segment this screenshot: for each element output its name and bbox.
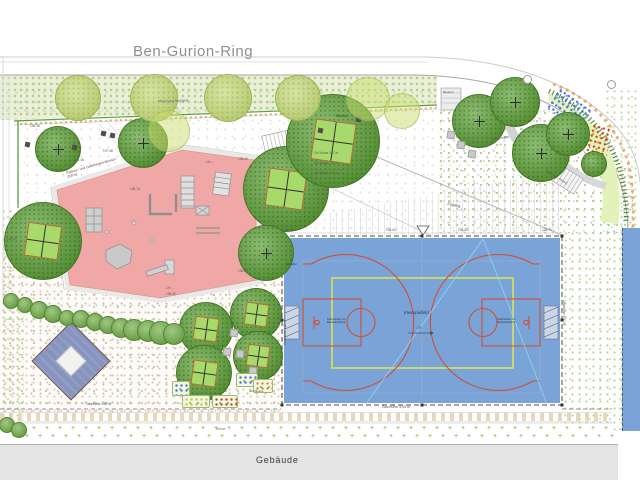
meadow-mark: + [363,433,367,440]
court-label: Kleinspielfeld [404,311,429,315]
meadow-mark: + [305,425,309,432]
bench-icon [110,133,116,139]
site-plan: Ben-Gurion-Ring Gebäude Pflanzung Bestan… [0,0,640,480]
tree-center-mark [138,138,149,149]
meadow-mark: + [584,433,588,440]
meadow-mark: + [227,425,231,432]
level-annotation: 136.30 [166,292,176,296]
meadow-mark: + [370,425,374,432]
meadow-mark: + [175,425,179,432]
meadow-mark: + [45,425,49,432]
meadow-mark: + [591,425,595,432]
meadow-mark: + [337,433,341,440]
meadow-mark: + [64,433,68,440]
meadow-mark: + [604,425,608,432]
existing-tree-icon [204,74,252,122]
meadow-mark: + [188,425,192,432]
meadow-mark: + [376,433,380,440]
bench-icon [101,131,107,137]
meadow-mark: + [435,425,439,432]
lamp-post-icon [607,80,616,89]
street-name: Ben-Gurion-Ring [133,44,253,60]
meadow-mark: + [38,433,42,440]
meadow-mark: + [461,425,465,432]
shrub-icon [11,422,27,438]
meadow-mark: + [77,433,81,440]
meadow-mark: + [545,433,549,440]
meadow-mark: + [246,433,250,440]
paving-stone-icon [456,140,465,149]
flower-bed [182,395,210,408]
court-markings [281,226,564,407]
meadow-mark: + [240,425,244,432]
meadow-mark: + [318,425,322,432]
level-annotation: 136.74 [130,187,140,191]
meadow-mark: + [519,433,523,440]
level-annotation: 136.63 [386,228,396,232]
meadow-mark: + [532,433,536,440]
existing-label: Bestand [443,91,453,94]
level-annotation: 1% → [166,286,175,290]
new-tree-symbol [243,301,269,327]
meadow-mark: + [168,433,172,440]
meadow-mark: + [201,425,205,432]
meadow-mark: + [103,433,107,440]
goal-label-right: Kleinfeldtor mit Basketballkorb [497,318,516,324]
new-tree-symbol [310,118,356,164]
meadow-mark: + [415,433,419,440]
tree-canopy-overlay [148,110,190,152]
meadow-mark: + [142,433,146,440]
meadow-mark: + [493,433,497,440]
meadow-mark: + [467,433,471,440]
tree-center-mark [474,116,485,127]
south-fence-label: Zaunhöhe 2,00 m [86,403,111,406]
tree-icon [4,202,82,280]
meadow-mark: + [207,433,211,440]
meadow-mark: + [480,433,484,440]
lamp-post-icon [523,75,532,84]
meadow-mark: + [409,425,413,432]
meadow-mark: + [344,425,348,432]
meadow-mark: + [422,425,426,432]
sand-play-square-inner [55,345,86,376]
meadow-mark: + [90,433,94,440]
meadow-mark: + [136,425,140,432]
paving-stone-icon [229,328,238,337]
shrub-icon [163,323,185,345]
paving-stone-icon [467,149,476,158]
meadow-mark: + [357,425,361,432]
meadow-mark: + [285,433,289,440]
tree-center-mark [261,248,272,259]
meadow-mark: + [552,425,556,432]
meadow-mark: + [383,425,387,432]
meadow-mark: + [71,425,75,432]
boule-label: Boccia [336,115,347,119]
level-annotation: 136.98 [30,124,40,128]
new-tree-symbol [24,222,62,260]
meadow-mark: + [194,433,198,440]
flower-bed [172,381,190,396]
meadow-mark: + [298,433,302,440]
tree-center-mark [536,148,547,159]
meadow-mark: + [565,425,569,432]
level-annotation: 136.28 [284,228,294,232]
meadow-mark: + [500,425,504,432]
level-annotation: 137.48 [103,149,113,153]
meadow-mark: + [389,433,393,440]
meadow-mark: + [84,425,88,432]
court-slope: 2% [417,327,422,330]
level-annotation: 135.74 [542,228,552,232]
meadow-mark: + [162,425,166,432]
meadow-mark: + [110,425,114,432]
tree-center-mark [53,144,64,155]
new-tree-symbol [192,315,219,342]
goal-left-line2: Basketballkorb [327,321,346,324]
meadow-mark: + [58,425,62,432]
meadow-mark: + [506,433,510,440]
court-fence-right: Zaunhöhe 4,00 m [562,300,565,325]
level-annotation: 136.26 [238,269,248,273]
tree-canopy-overlay [384,93,420,129]
meadow-mark: + [32,425,36,432]
meadow-mark: + [558,433,562,440]
existing-tree-icon [275,75,321,121]
meadow-mark: + [324,433,328,440]
tree-icon [546,112,590,156]
meadow-mark: + [149,425,153,432]
meadow-mark: + [597,433,601,440]
meadow-mark: + [578,425,582,432]
meadow-mark: + [396,425,400,432]
meadow-mark: + [441,433,445,440]
court-gate-label: Einzeltür [286,263,297,266]
meadow-mark: + [526,425,530,432]
existing-tree-icon [55,75,101,121]
meadow-mark: + [428,433,432,440]
new-tree-symbol [190,359,218,387]
meadow-mark: + [331,425,335,432]
meadow-mark: + [220,433,224,440]
meadow-mark: + [123,425,127,432]
flower-bed [212,395,238,408]
meadow-mark: + [279,425,283,432]
tree-icon [581,151,607,177]
meadow-mark: + [448,425,452,432]
meadow-mark: + [513,425,517,432]
bench-icon [318,128,324,134]
paving-stone-icon [222,347,231,356]
level-annotation: OK Mauer 137 m [314,161,338,165]
meadow-mark: + [155,433,159,440]
tree-icon [490,77,540,127]
tree-center-mark [563,129,574,140]
level-annotation: OK Mauer 137 m [314,171,338,175]
level-annotation: 1% → [206,160,215,164]
raised-beds-label: Hochbeete [250,390,264,393]
meadow-mark: + [116,433,120,440]
meadow-mark: + [233,433,237,440]
meadow-mark: + [539,425,543,432]
site-plan-linework [0,0,640,480]
meadow-mark: + [311,433,315,440]
meadow-mark: + [259,433,263,440]
paving-stone-icon [235,349,244,358]
bench-icon [72,145,78,151]
level-annotation: 136.38 [458,228,468,232]
meadow-mark: + [292,425,296,432]
meadow-mark: + [266,425,270,432]
court-fence-bottom: Zaunhöhe 4,00 m [382,406,410,410]
meadow-mark: + [571,433,575,440]
goal-right-line2: Basketballkorb [497,321,516,324]
bench-icon [25,142,31,148]
meadow-label: Wiese [216,428,225,432]
meadow-mark: + [487,425,491,432]
paving-stone-icon [446,130,455,139]
meadow-mark: + [454,433,458,440]
meadow-mark: + [97,425,101,432]
meadow-mark: + [474,425,478,432]
level-annotation: 136.06 [7,237,17,241]
meadow-mark: + [402,433,406,440]
meadow-mark: + [253,425,257,432]
level-annotation: 136.43 [238,157,248,161]
tree-center-mark [510,97,521,108]
meadow-mark: + [610,433,614,440]
court-fence-left: Zaunhöhe 4,00 m [284,320,287,345]
meadow-mark: + [181,433,185,440]
meadow-mark: + [272,433,276,440]
level-annotation: 136.46 [74,158,84,162]
meadow-mark: + [51,433,55,440]
level-annotation: OK Mauer 137 m [314,151,338,155]
goal-label-left: Kleinfeldtor mit Basketballkorb [327,318,346,324]
meadow-mark: + [129,433,133,440]
new-tree-symbol [246,344,271,369]
building-label: Gebäude [256,456,299,465]
meadow-mark: + [350,433,354,440]
